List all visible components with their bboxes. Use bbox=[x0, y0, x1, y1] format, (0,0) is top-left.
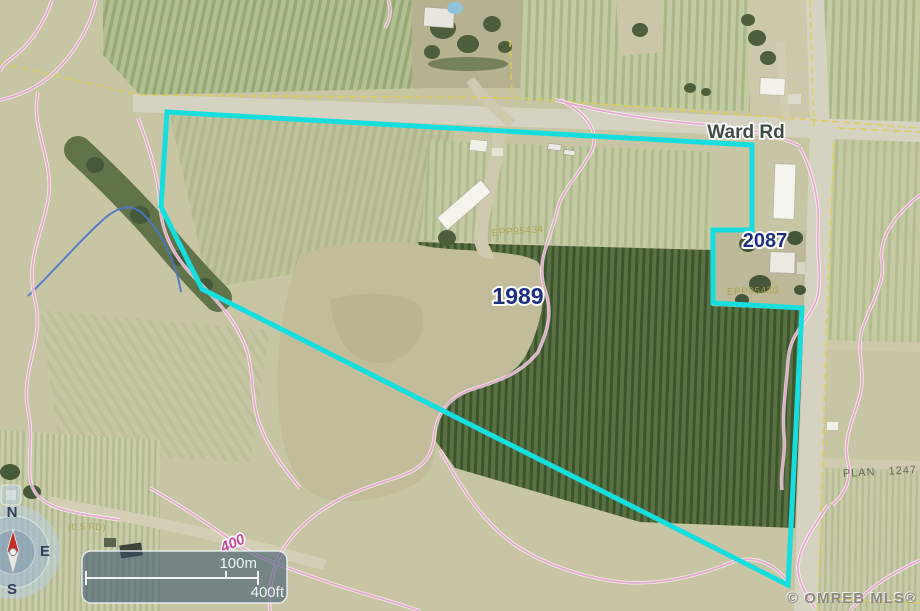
svg-text:© OMREB MLS®: © OMREB MLS® bbox=[787, 590, 917, 607]
scale-metric: 100m bbox=[219, 555, 257, 572]
pool bbox=[447, 2, 463, 14]
compass-hub bbox=[10, 549, 17, 556]
scale-imperial: 400ft bbox=[251, 584, 285, 601]
scale-bar: 100m 400ft bbox=[82, 551, 287, 603]
compass-n: N bbox=[7, 504, 18, 521]
compass-e: E bbox=[40, 543, 50, 560]
map-canvas[interactable]: Ward Rd 1989 2087 EPP95434 EPP95430 PLAN… bbox=[0, 0, 920, 611]
road-label: Ward Rd bbox=[707, 122, 784, 143]
compass-s: S bbox=[7, 581, 17, 598]
layers-icon bbox=[6, 490, 16, 500]
watermark: © OMREB MLS® © OMREB MLS® bbox=[786, 589, 917, 607]
plan-label-epp95430: EPP95430 bbox=[727, 285, 779, 298]
road-note: (0.5 RD) bbox=[68, 522, 106, 532]
map-widget-button[interactable] bbox=[1, 485, 21, 505]
parcel-label-2087: 2087 bbox=[743, 230, 788, 252]
parcel-label-1989: 1989 bbox=[492, 283, 543, 309]
